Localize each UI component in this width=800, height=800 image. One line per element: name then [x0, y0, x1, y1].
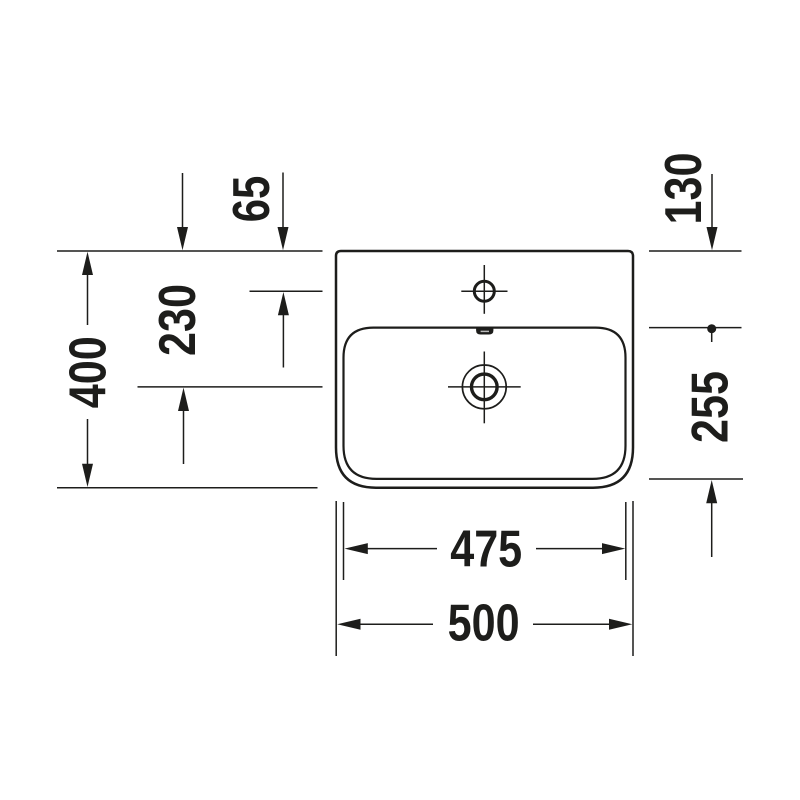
svg-text:475: 475 [450, 521, 522, 579]
svg-text:255: 255 [682, 371, 740, 443]
svg-text:130: 130 [655, 153, 713, 225]
svg-text:230: 230 [149, 284, 207, 356]
svg-text:65: 65 [223, 176, 281, 223]
svg-text:500: 500 [448, 594, 520, 652]
svg-text:400: 400 [59, 336, 117, 408]
